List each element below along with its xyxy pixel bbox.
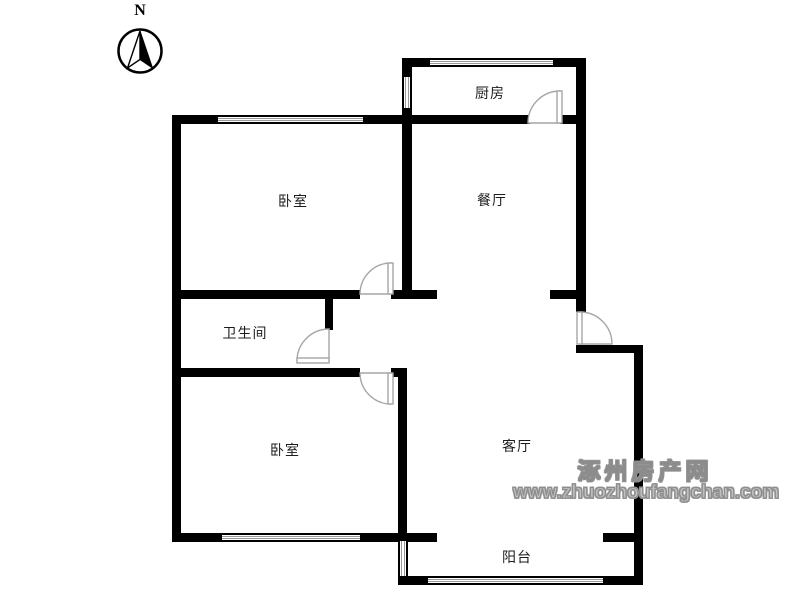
room-label-bedroom-top: 卧室 xyxy=(278,191,308,211)
bedroom-bottom-door-leaf xyxy=(388,373,393,404)
watermark-url: www.zhuozhoufangchan.com xyxy=(513,482,779,504)
bedroom-top-door-leaf xyxy=(388,263,393,294)
room-label-kitchen: 厨房 xyxy=(475,83,505,103)
bathroom-door-arc xyxy=(297,329,329,361)
room-label-bedroom-bottom: 卧室 xyxy=(270,440,300,460)
compass-needle-right xyxy=(140,31,153,68)
room-label-living: 客厅 xyxy=(502,436,532,456)
kitchen-door-arc xyxy=(528,91,560,123)
compass-north-label: N xyxy=(134,2,146,20)
north-arrow-icon xyxy=(0,0,200,110)
room-label-dining: 餐厅 xyxy=(477,190,507,210)
bedroom-top-door-arc xyxy=(360,263,391,294)
bedroom-bottom-door-arc xyxy=(360,373,391,404)
compass-needle-left xyxy=(128,31,141,68)
bathroom-door-leaf xyxy=(297,358,329,363)
watermark-site-name: 涿州房产网 xyxy=(578,452,713,486)
floor-plan-canvas: N 厨房 餐厅 卧室 卫生间 卧室 客厅 阳台 涿州房产网 www.zhuozh… xyxy=(0,0,800,600)
kitchen-door-leaf xyxy=(557,91,562,123)
dining-right-door-arc xyxy=(580,312,612,344)
dining-right-door-leaf xyxy=(577,312,582,344)
room-label-bathroom: 卫生间 xyxy=(223,323,268,343)
room-label-balcony: 阳台 xyxy=(502,547,532,567)
